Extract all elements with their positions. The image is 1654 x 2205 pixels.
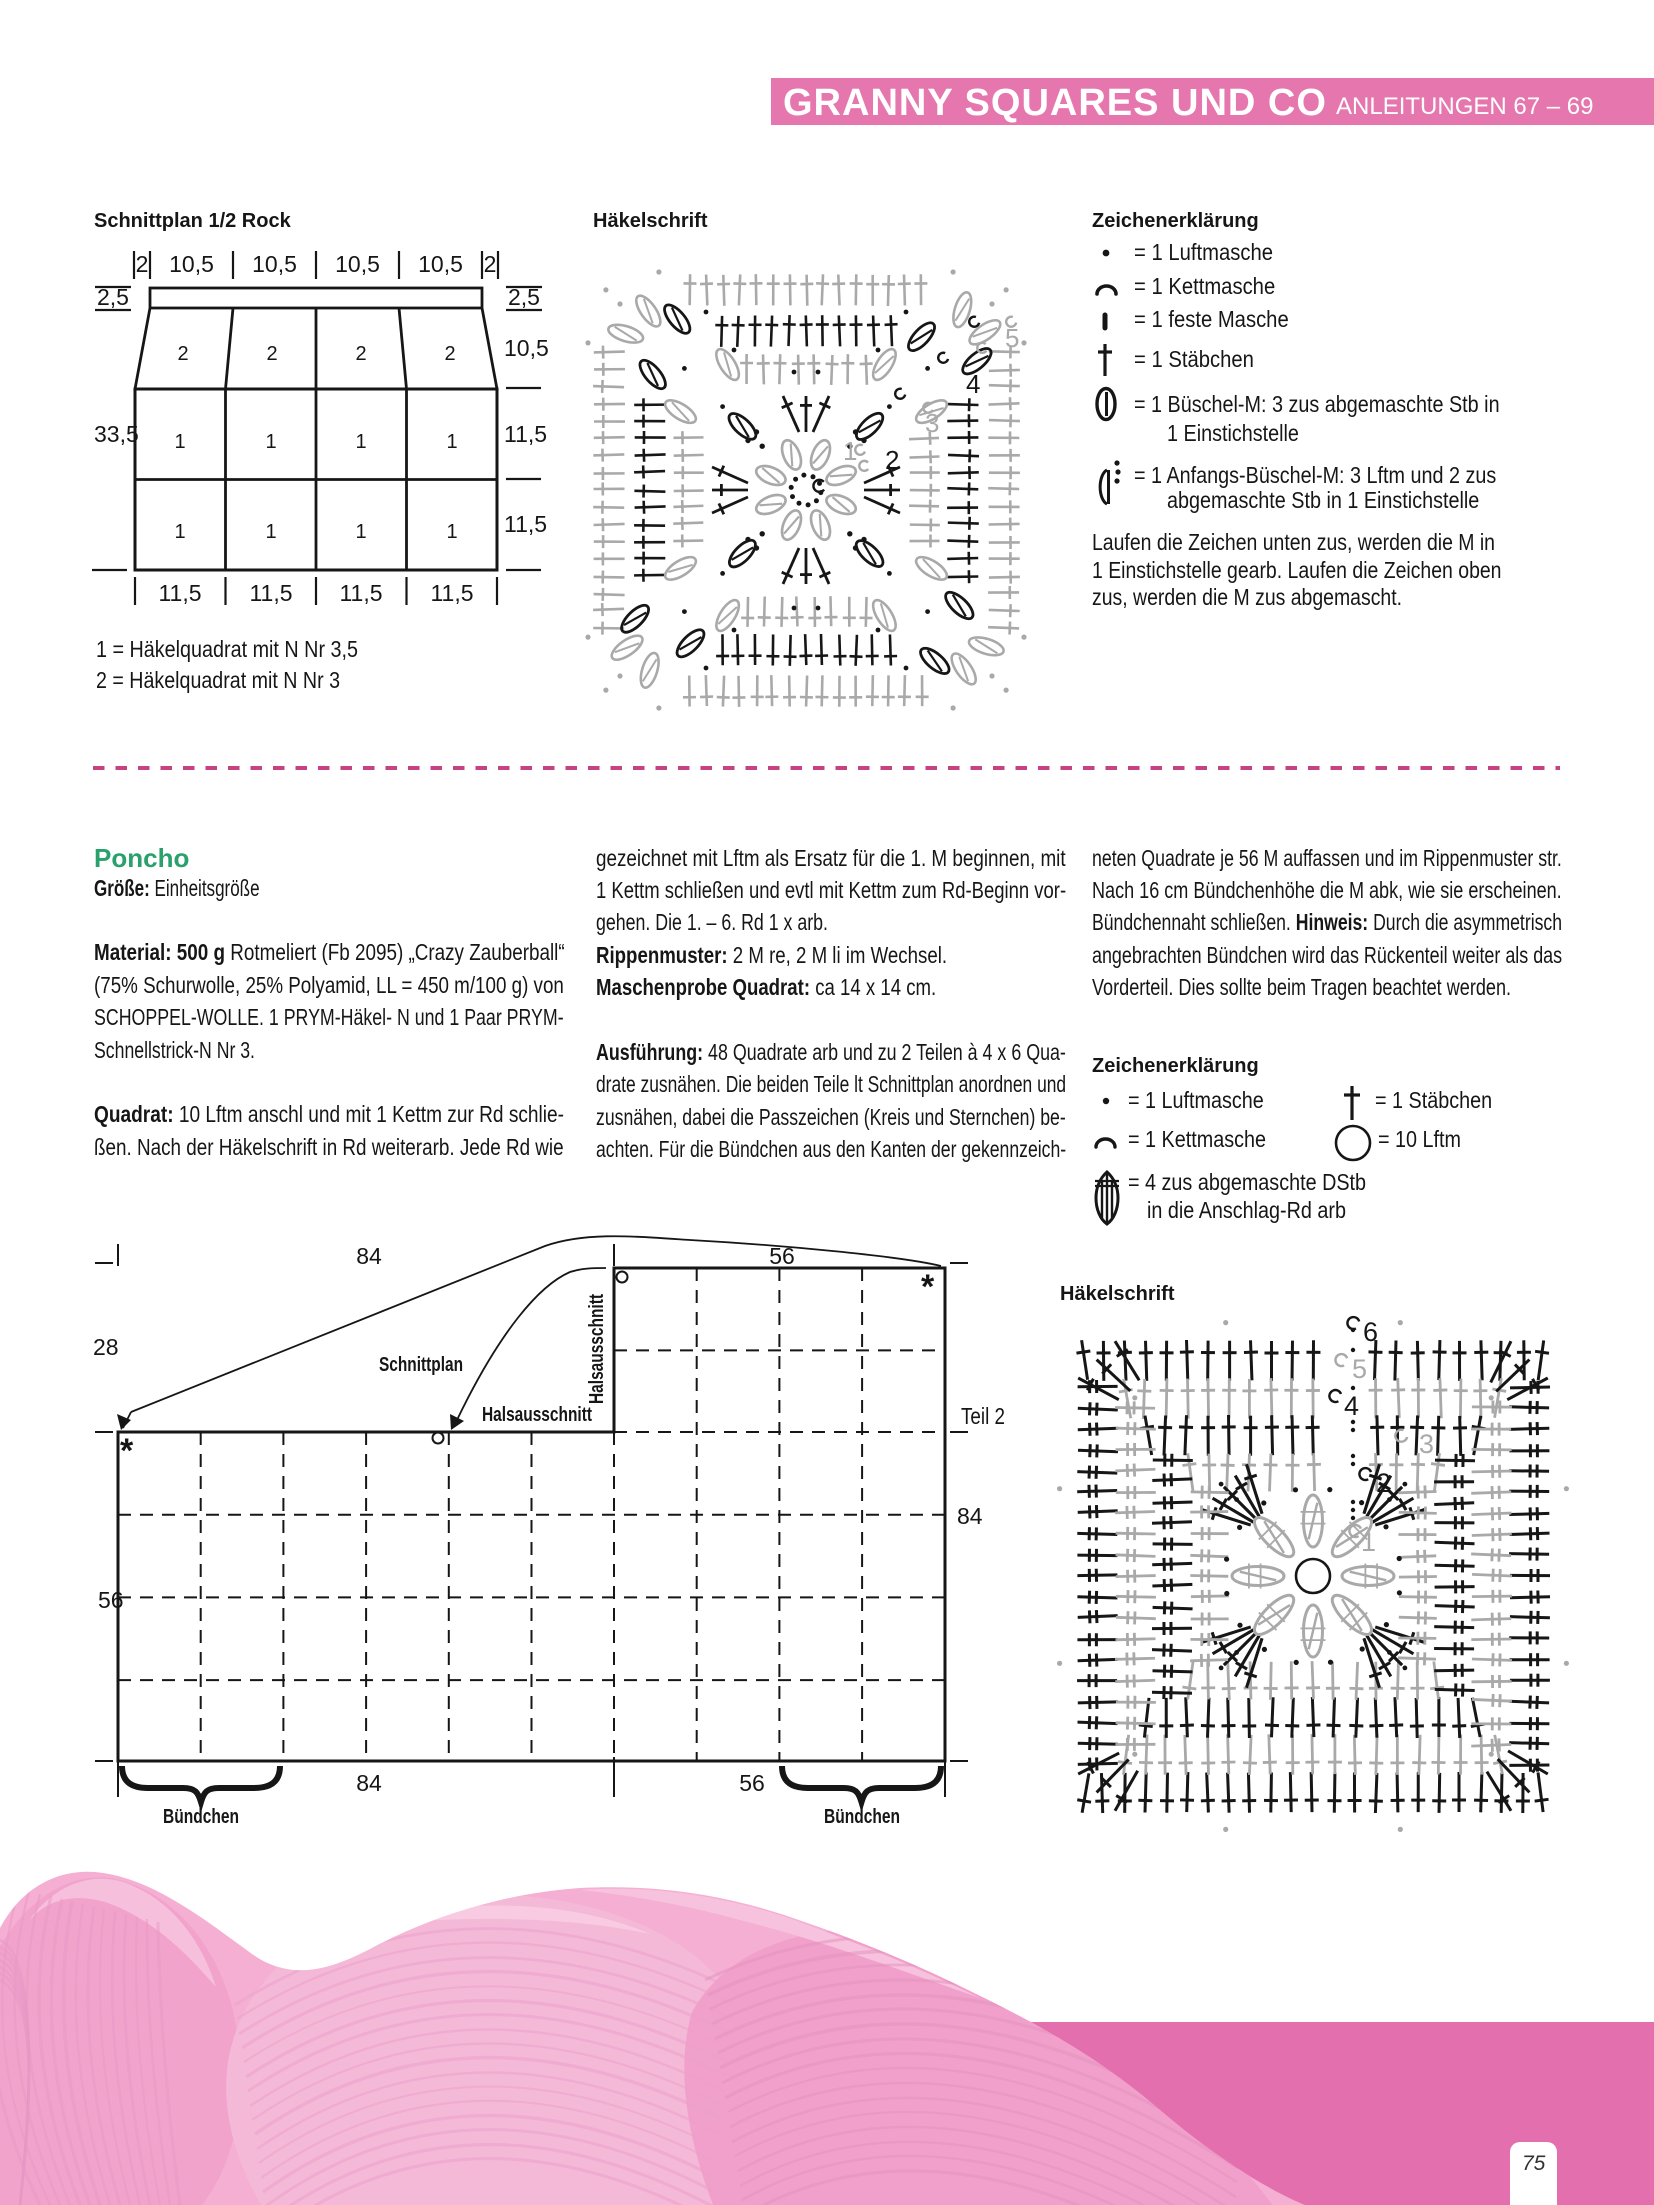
- svg-text:84: 84: [356, 1243, 382, 1269]
- svg-text:84: 84: [356, 1770, 382, 1796]
- svg-text:1: 1: [174, 431, 185, 453]
- svg-text:1: 1: [265, 521, 276, 543]
- svg-text:Schnittplan: Schnittplan: [379, 1354, 463, 1376]
- svg-text:1: 1: [446, 521, 457, 543]
- svg-text:33,5: 33,5: [94, 421, 139, 447]
- svg-text:Bündchen: Bündchen: [163, 1806, 239, 1828]
- svg-text:10,5: 10,5: [252, 251, 297, 277]
- svg-text:10,5: 10,5: [335, 251, 380, 277]
- svg-text:Halsausschnitt: Halsausschnitt: [586, 1294, 608, 1404]
- svg-text:1: 1: [355, 521, 366, 543]
- svg-text:1: 1: [174, 521, 185, 543]
- svg-text:Teil 2: Teil 2: [961, 1403, 1005, 1429]
- svg-text:2: 2: [177, 343, 188, 365]
- svg-text:5: 5: [1352, 1354, 1367, 1384]
- svg-text:2 = Häkelquadrat mit N Nr 3: 2 = Häkelquadrat mit N Nr 3: [96, 667, 340, 693]
- svg-text:2: 2: [136, 251, 149, 277]
- svg-text:2: 2: [1376, 1468, 1391, 1498]
- svg-text:11,5: 11,5: [158, 580, 201, 606]
- svg-text:11,5: 11,5: [249, 580, 292, 606]
- svg-text:1: 1: [265, 431, 276, 453]
- svg-text:1: 1: [446, 431, 457, 453]
- svg-text:4: 4: [966, 369, 980, 399]
- svg-text:1 = Häkelquadrat mit N Nr 3,5: 1 = Häkelquadrat mit N Nr 3,5: [96, 636, 358, 662]
- svg-text:11,5: 11,5: [504, 421, 547, 447]
- svg-text:28: 28: [93, 1334, 119, 1360]
- svg-text:10,5: 10,5: [418, 251, 463, 277]
- svg-text:2: 2: [355, 343, 366, 365]
- svg-text:3: 3: [1419, 1429, 1434, 1459]
- svg-text:2: 2: [444, 343, 455, 365]
- svg-text:4: 4: [1344, 1391, 1359, 1421]
- svg-text:11,5: 11,5: [504, 511, 547, 537]
- svg-text:Halsausschnitt: Halsausschnitt: [482, 1404, 592, 1426]
- svg-text:1: 1: [355, 431, 366, 453]
- svg-text:2: 2: [484, 251, 497, 277]
- svg-text:*: *: [120, 1432, 134, 1470]
- svg-text:56: 56: [739, 1770, 765, 1796]
- svg-text:56: 56: [769, 1243, 795, 1269]
- svg-text:6: 6: [1363, 1317, 1378, 1347]
- svg-text:Bündchen: Bündchen: [824, 1806, 900, 1828]
- svg-text:56: 56: [98, 1587, 124, 1613]
- svg-text:10,5: 10,5: [169, 251, 214, 277]
- svg-text:2: 2: [885, 445, 899, 475]
- svg-text:1: 1: [1361, 1527, 1376, 1557]
- svg-text:84: 84: [957, 1503, 983, 1529]
- svg-text:*: *: [921, 1268, 935, 1306]
- svg-text:2: 2: [266, 343, 277, 365]
- svg-text:11,5: 11,5: [430, 580, 473, 606]
- svg-text:10,5: 10,5: [504, 335, 549, 361]
- svg-text:11,5: 11,5: [339, 580, 382, 606]
